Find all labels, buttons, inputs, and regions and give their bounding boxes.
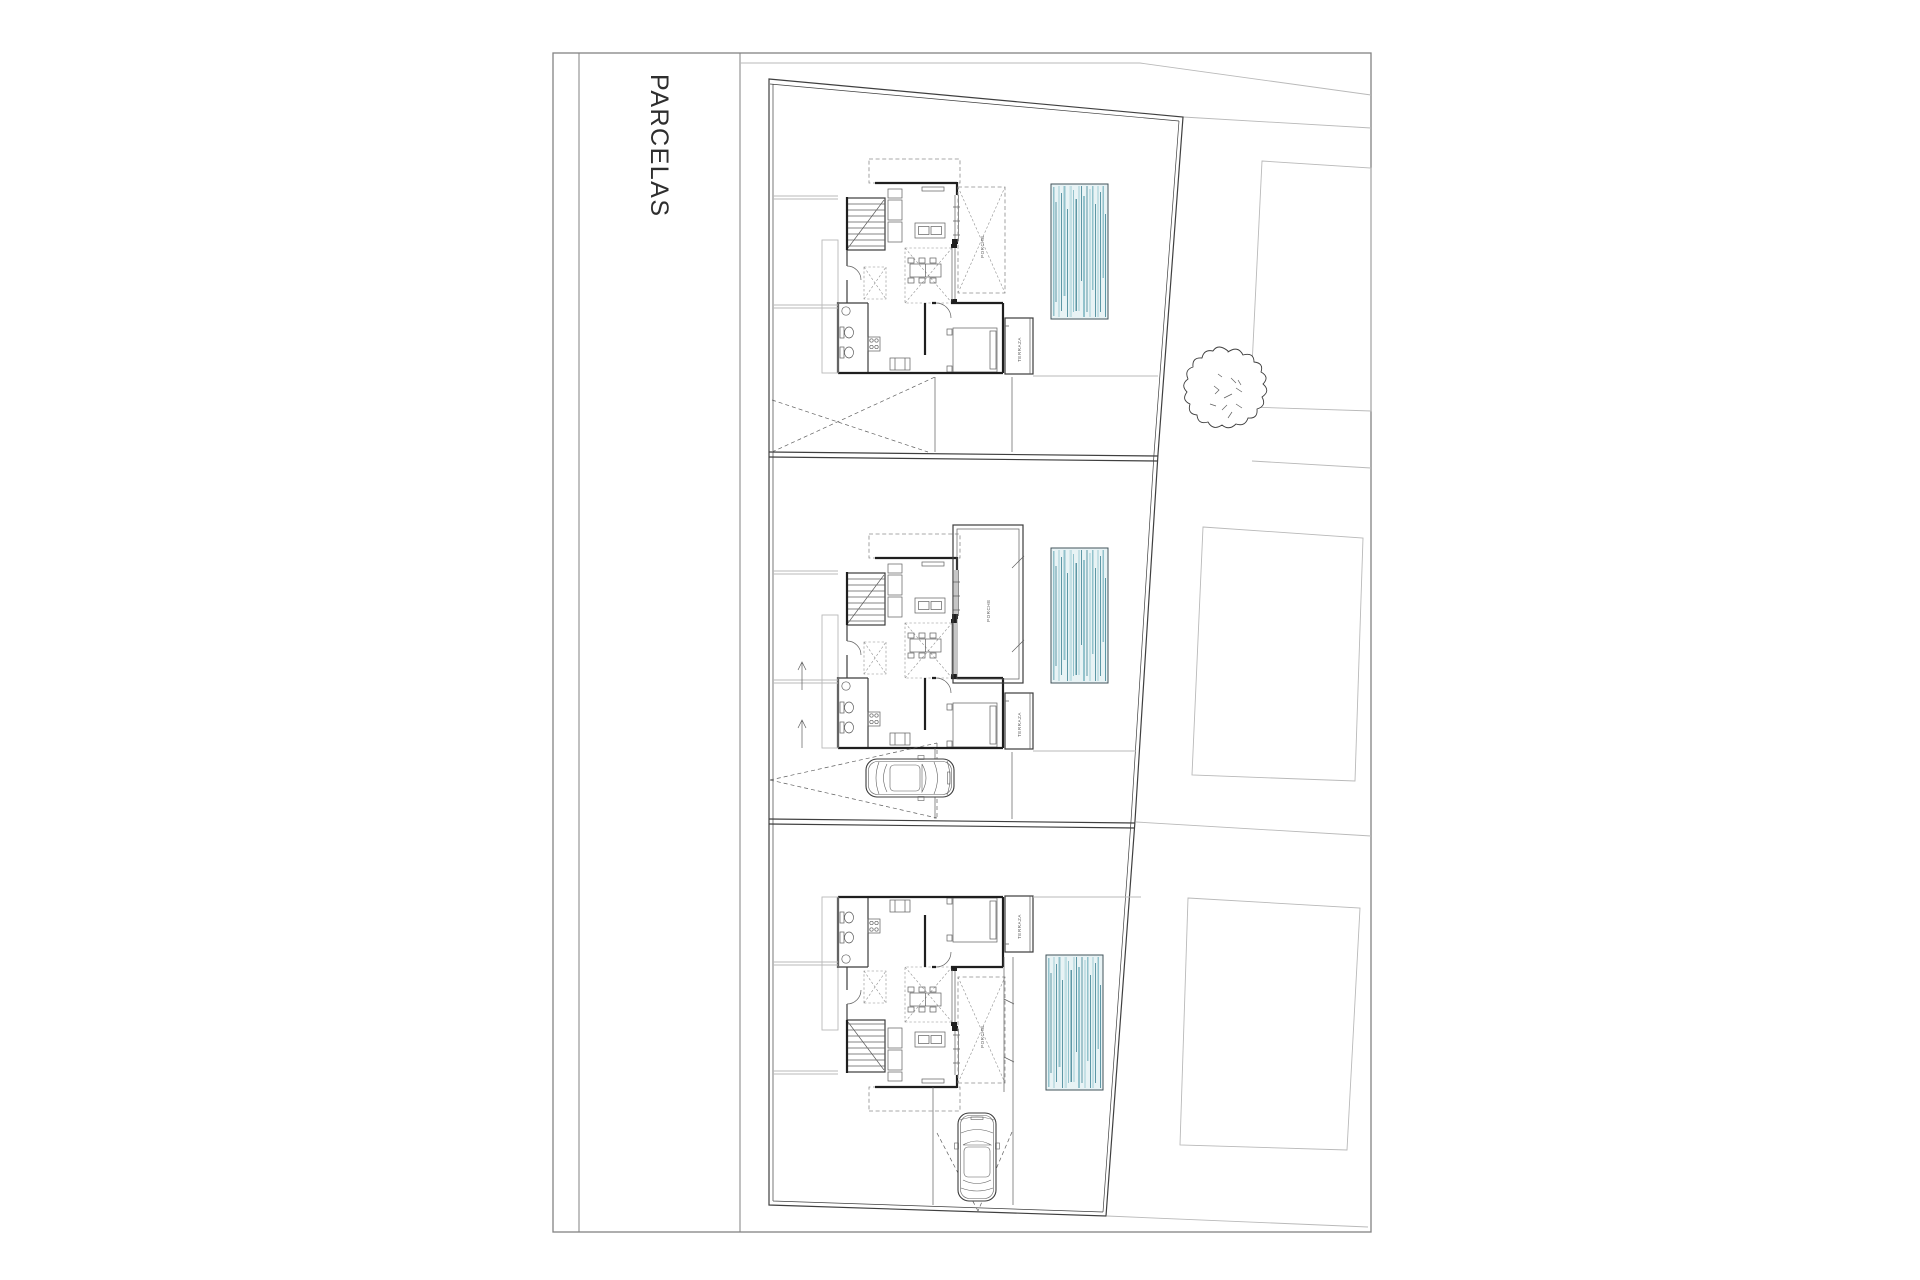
terrace-label-2: TERRAZA (1017, 712, 1022, 737)
porch-label-3: PORCHE (980, 1025, 985, 1048)
sheet-title: PARCELAS (645, 74, 673, 218)
page: PARCELAS PORCHE TERRAZA (0, 0, 1920, 1280)
swimming-pool-2 (1051, 548, 1108, 683)
porch-label-1: PORCHE (980, 235, 985, 258)
terrace-label-3: TERRAZA (1017, 914, 1022, 939)
site-plan-drawing: PARCELAS PORCHE TERRAZA (0, 0, 1920, 1280)
sheet-frame (553, 53, 1371, 1232)
swimming-pool-3 (1046, 955, 1103, 1090)
swimming-pool-1 (1051, 184, 1108, 319)
porch-label-2: PORCHE (986, 599, 991, 622)
car-parcel-2 (866, 756, 954, 801)
car-parcel-3 (955, 1113, 1000, 1201)
terrace-label-1: TERRAZA (1017, 337, 1022, 362)
